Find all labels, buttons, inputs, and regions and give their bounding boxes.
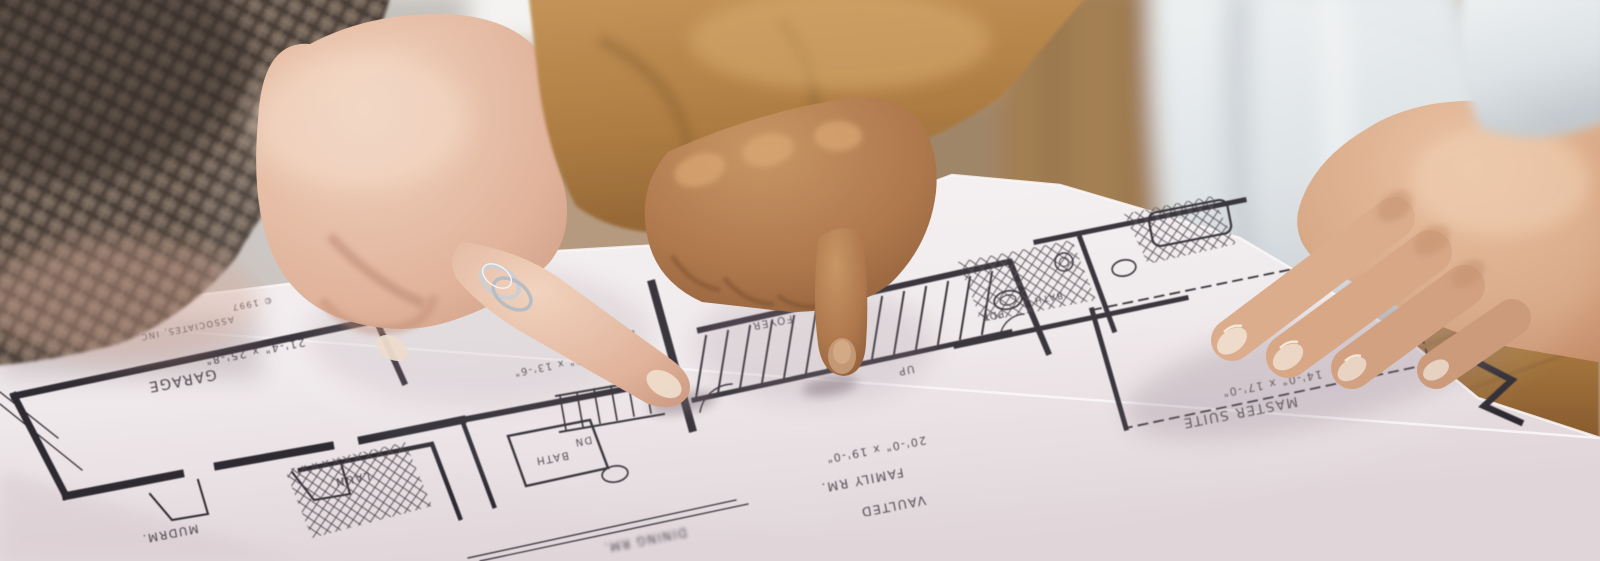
blueprint-review-photo: ASSOCIATES, INC. © 1997 GARAGE 21'-4" x … xyxy=(0,0,1600,561)
photo-scene: ASSOCIATES, INC. © 1997 GARAGE 21'-4" x … xyxy=(0,0,1600,561)
